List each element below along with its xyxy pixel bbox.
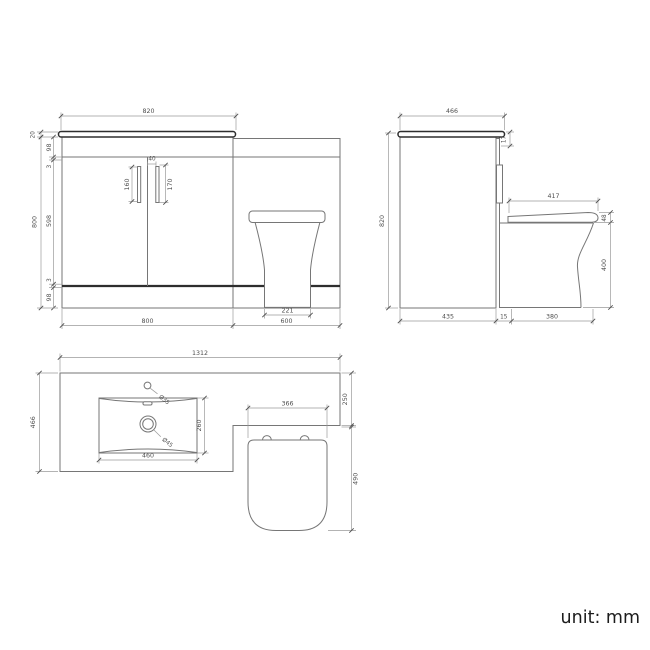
dim-label: 17 — [502, 136, 508, 144]
dim-label: 40 — [148, 157, 156, 163]
dim-label: 221 — [281, 307, 293, 314]
toilet-bowl-profile — [577, 223, 593, 308]
dim-side-bottom: 435 15 380 — [398, 309, 595, 325]
dim-counter-width: 820 — [59, 108, 238, 130]
countertop-side — [398, 132, 505, 138]
dim-label: 600 — [280, 318, 292, 325]
dim-label: 98 — [46, 143, 53, 151]
dim-label: 435 — [442, 313, 454, 320]
dim-label: 400 — [601, 259, 608, 271]
waste-hole-inner — [143, 419, 154, 430]
dim-label: 460 — [142, 452, 154, 459]
dim-label: 260 — [196, 419, 203, 431]
dim-plan-total-width: 1312 — [58, 350, 342, 372]
toilet-body-front — [255, 222, 320, 307]
vanity-cabinet-side — [400, 137, 496, 308]
dim-label: 3 — [47, 164, 53, 168]
front-elevation-view: 820 20 98 3 598 3 98 — [31, 108, 343, 329]
dim-bowl-height: 400 — [583, 223, 614, 310]
dim-label: 800 — [32, 216, 39, 228]
dim-bottom-widths: 800 600 — [60, 309, 342, 329]
dim-front-height-stack: 98 3 598 3 98 — [46, 135, 62, 310]
overflow-slot — [143, 402, 152, 405]
dim-label: 598 — [46, 215, 53, 227]
dim-label: 380 — [546, 313, 558, 320]
side-elevation-view: 466 17 820 417 — [379, 108, 614, 325]
toilet-seat-side — [508, 213, 598, 223]
countertop-front — [59, 132, 236, 138]
dim-label: 490 — [353, 473, 360, 485]
dim-label: 417 — [547, 193, 559, 200]
handle-side — [497, 165, 503, 203]
dim-pan-length: 490 — [328, 425, 360, 533]
technical-drawing-page: 820 20 98 3 598 3 98 — [0, 0, 650, 650]
dim-label: 20 — [31, 131, 37, 139]
dim-side-depth: 466 — [398, 108, 507, 130]
drawing-canvas: 820 20 98 3 598 3 98 — [0, 0, 650, 650]
dim-label: 48 — [602, 214, 608, 222]
dim-label: 366 — [281, 400, 293, 407]
dim-label: 820 — [379, 215, 386, 227]
dim-label: 250 — [342, 393, 349, 405]
dim-label: 170 — [167, 178, 174, 190]
dim-side-height: 820 — [379, 131, 398, 310]
dim-label: 820 — [142, 108, 154, 115]
dim-seat-length: 417 — [507, 193, 600, 213]
unit-label: unit: mm — [561, 608, 640, 628]
dim-label: 1312 — [192, 350, 208, 357]
plan-view: 1312 466 250 460 — [30, 350, 360, 533]
dim-plan-depth: 466 — [30, 371, 58, 474]
dim-label: 466 — [446, 108, 458, 115]
toilet-seat-front — [249, 211, 325, 223]
dim-counter-thickness: 20 — [31, 130, 59, 139]
handle-left — [138, 167, 141, 203]
dim-label: 160 — [124, 178, 131, 190]
dim-label: 800 — [141, 318, 153, 325]
handle-right — [156, 167, 159, 203]
seat-hinge-right — [300, 436, 309, 440]
dim-label: 3 — [47, 278, 53, 282]
dim-label: 98 — [46, 293, 53, 301]
dim-label: 15 — [500, 314, 508, 320]
seat-hinge-left — [263, 436, 272, 440]
toilet-seat-plan — [248, 440, 327, 531]
dim-label: 466 — [30, 416, 37, 428]
dim-wc-top-depth: 250 — [342, 371, 357, 428]
tap-hole — [144, 382, 151, 389]
